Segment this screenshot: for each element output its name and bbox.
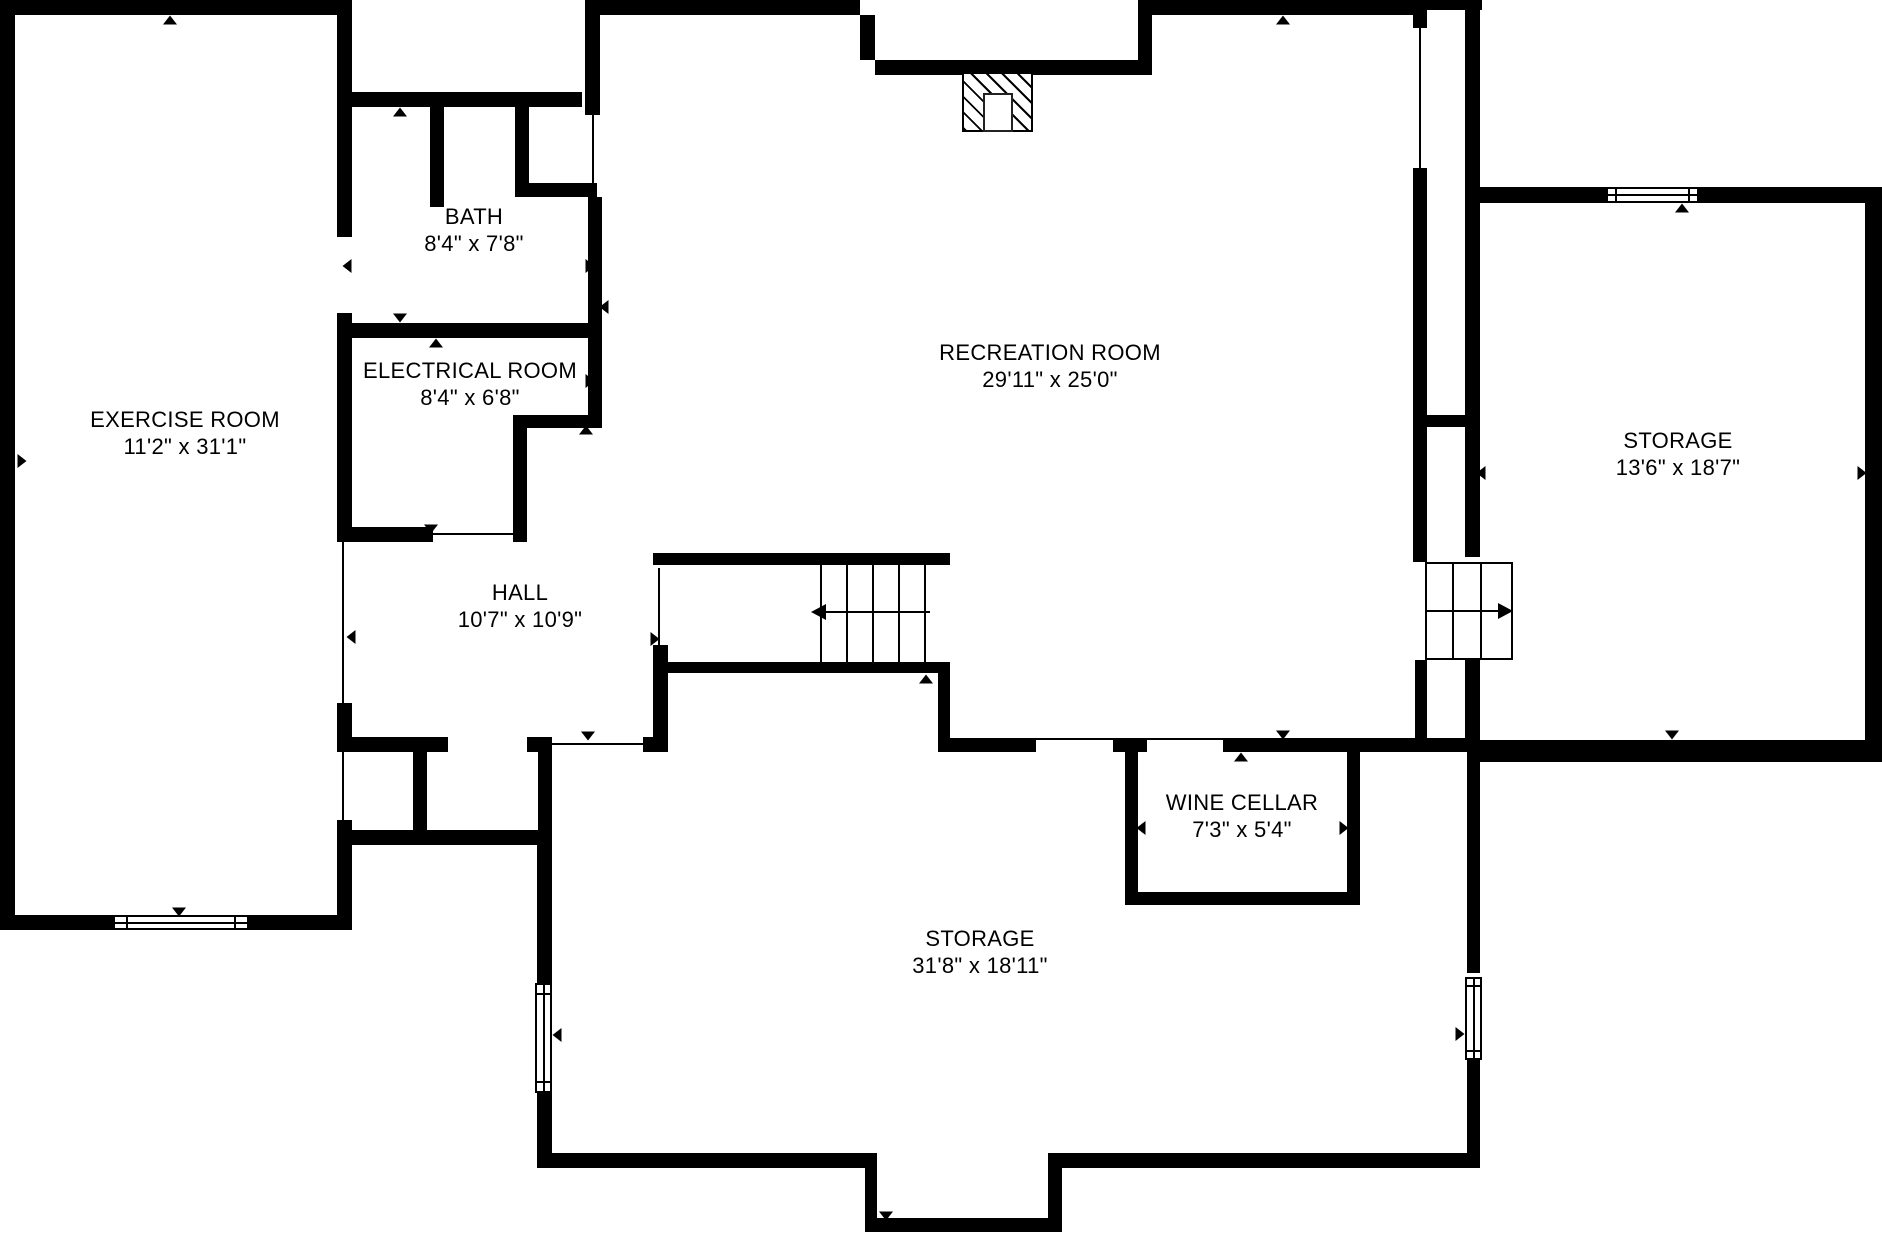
window-mullion-line (115, 922, 247, 924)
opening-arrow-icon (1276, 16, 1290, 25)
wall-segment (537, 1093, 552, 1153)
wall-segment (1223, 738, 1480, 752)
wall-segment (653, 645, 668, 747)
wall-segment (1413, 0, 1482, 10)
wall-segment (1699, 187, 1882, 203)
window-mullion-line (1473, 979, 1475, 1058)
window-frame-cap (537, 1081, 550, 1083)
stair-tread-line (898, 565, 900, 662)
wall-segment (1465, 203, 1480, 557)
opening-arrow-icon (586, 259, 595, 273)
wall-segment (337, 313, 352, 530)
opening-arrow-icon (879, 1212, 893, 1221)
opening-arrow-icon (163, 16, 177, 25)
opening-arrow-icon (1340, 821, 1349, 835)
stair-direction-arrow (1432, 610, 1498, 612)
opening-arrow-icon (919, 675, 933, 684)
wall-segment (1467, 740, 1882, 762)
wall-segment (337, 737, 448, 752)
room-name: ELECTRICAL ROOM (363, 357, 577, 384)
room-name: STORAGE (1616, 427, 1741, 454)
wall-segment (1113, 738, 1147, 752)
wall-segment (1413, 10, 1427, 28)
wall-segment (1415, 660, 1427, 738)
wall-segment (430, 107, 444, 207)
room-dimensions: 10'7" x 10'9" (458, 606, 583, 633)
wall-segment (337, 527, 433, 542)
opening-line (1419, 28, 1421, 168)
room-dimensions: 31'8" x 18'11" (912, 952, 1047, 979)
opening-arrow-icon (342, 457, 351, 471)
room-label-recreation-room: RECREATION ROOM29'11" x 25'0" (939, 339, 1161, 393)
opening-arrow-icon (1477, 466, 1486, 480)
wall-segment (1413, 415, 1465, 427)
opening-arrow-icon (1675, 204, 1689, 213)
room-dimensions: 29'11" x 25'0" (939, 366, 1161, 393)
opening-arrow-icon (1233, 895, 1247, 904)
stair-arrow-head-icon (1498, 603, 1513, 619)
window-frame-cap (1467, 1050, 1480, 1052)
wall-segment (653, 553, 950, 565)
window-mullion-line (543, 985, 545, 1091)
wall-segment (337, 15, 352, 237)
wall-segment (1138, 0, 1152, 75)
opening-line (1036, 738, 1113, 740)
stair-direction-arrow (826, 611, 930, 613)
room-label-hall: HALL10'7" x 10'9" (458, 579, 583, 633)
window-frame-cap (1467, 985, 1480, 987)
wall-segment (1467, 1060, 1480, 1168)
opening-line (342, 530, 344, 703)
opening-arrow-icon (651, 632, 660, 646)
wall-segment (585, 0, 600, 115)
stair-tread-line (924, 565, 926, 662)
wall-segment (352, 92, 582, 107)
wall-segment (1465, 187, 1608, 203)
window (1606, 187, 1699, 203)
opening-arrow-icon (343, 365, 352, 379)
opening-arrow-icon (1858, 466, 1867, 480)
opening-arrow-icon (343, 259, 352, 273)
wall-segment (537, 1153, 877, 1168)
room-name: RECREATION ROOM (939, 339, 1161, 366)
window-frame-cap (1688, 189, 1690, 201)
wall-segment (527, 737, 552, 752)
room-label-wine-cellar: WINE CELLAR7'3" x 5'4" (1166, 789, 1318, 843)
room-name: WINE CELLAR (1166, 789, 1318, 816)
stair-arrow-head-icon (811, 604, 826, 620)
opening-line (1147, 738, 1223, 740)
wall-segment (1347, 752, 1360, 892)
window-frame-cap (1615, 189, 1617, 201)
wall-segment (865, 1218, 1062, 1232)
wall-segment (860, 15, 875, 60)
opening-arrow-icon (429, 339, 443, 348)
room-dimensions: 13'6" x 18'7" (1616, 454, 1741, 481)
opening-arrow-icon (1276, 731, 1290, 740)
room-label-storage-bottom: STORAGE31'8" x 18'11" (912, 925, 1047, 979)
opening-arrow-icon (579, 426, 593, 435)
window (535, 983, 552, 1093)
opening-line (342, 752, 344, 820)
opening-arrow-icon (424, 525, 438, 534)
wall-segment (0, 0, 15, 930)
opening-arrow-icon (172, 908, 186, 917)
opening-arrow-icon (393, 314, 407, 323)
room-dimensions: 7'3" x 5'4" (1166, 816, 1318, 843)
room-dimensions: 8'4" x 6'8" (363, 384, 577, 411)
opening-arrow-icon (347, 630, 356, 644)
wall-segment (1413, 168, 1427, 427)
opening-arrow-icon (1665, 731, 1679, 740)
wall-segment (1465, 660, 1480, 752)
wall-segment (337, 830, 552, 845)
window-frame-cap (537, 993, 550, 995)
wall-segment (1467, 752, 1480, 973)
room-name: HALL (458, 579, 583, 606)
room-label-exercise-room: EXERCISE ROOM11'2" x 31'1" (90, 406, 280, 460)
opening-arrow-icon (600, 300, 609, 314)
room-label-bath: BATH8'4" x 7'8" (424, 203, 524, 257)
wall-segment (337, 323, 602, 338)
room-dimensions: 8'4" x 7'8" (424, 230, 524, 257)
room-name: EXERCISE ROOM (90, 406, 280, 433)
wall-segment (513, 428, 527, 542)
room-label-electrical-room: ELECTRICAL ROOM8'4" x 6'8" (363, 357, 577, 411)
room-label-storage-right: STORAGE13'6" x 18'7" (1616, 427, 1741, 481)
opening-line (592, 115, 594, 188)
window (1465, 977, 1482, 1060)
room-name: BATH (424, 203, 524, 230)
wall-segment (527, 183, 597, 197)
opening-arrow-icon (18, 454, 27, 468)
wall-segment (1865, 187, 1882, 762)
wall-segment (413, 752, 427, 830)
wall-segment (537, 845, 552, 983)
opening-arrow-icon (1234, 753, 1248, 762)
wall-segment (0, 0, 352, 15)
floor-plan: EXERCISE ROOM11'2" x 31'1"BATH8'4" x 7'8… (0, 0, 1882, 1236)
room-name: STORAGE (912, 925, 1047, 952)
wall-segment (1413, 427, 1427, 562)
opening-arrow-icon (1137, 821, 1146, 835)
window-mullion-line (1608, 194, 1697, 196)
window-frame-cap (234, 917, 236, 928)
window (113, 915, 249, 930)
opening-line (433, 533, 513, 535)
fireplace-firebox (983, 93, 1013, 132)
wall-segment (585, 0, 860, 15)
opening-arrow-icon (586, 374, 595, 388)
opening-arrow-icon (393, 108, 407, 117)
opening-arrow-icon (553, 1028, 562, 1042)
stair-tread-line (872, 565, 874, 662)
wall-segment (1048, 1153, 1480, 1168)
window-frame-cap (126, 917, 128, 928)
opening-line (552, 743, 653, 745)
opening-arrow-icon (581, 732, 595, 741)
room-dimensions: 11'2" x 31'1" (90, 433, 280, 460)
wall-segment (1465, 10, 1480, 187)
wall-segment (1152, 0, 1413, 15)
wall-segment (938, 662, 950, 750)
wall-segment (653, 662, 950, 673)
stair-tread-line (846, 565, 848, 662)
opening-arrow-icon (1456, 1027, 1465, 1041)
wall-segment (938, 738, 1036, 752)
